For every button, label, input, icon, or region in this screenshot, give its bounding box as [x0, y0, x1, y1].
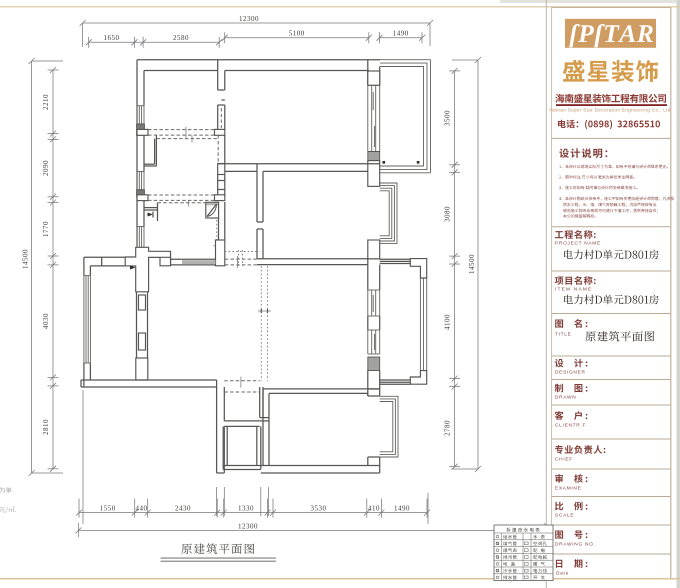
svg-text:1330: 1330 [238, 504, 254, 512]
svg-text:12300: 12300 [238, 523, 258, 531]
svg-text:2810: 2810 [42, 419, 50, 435]
svg-text:14500: 14500 [22, 249, 30, 269]
svg-text:410: 410 [368, 504, 380, 512]
svg-text:DRAWN: DRAWN [555, 395, 576, 401]
svg-text:ITEM NAME: ITEM NAME [555, 287, 592, 293]
svg-text:CLIENTR F: CLIENTR F [555, 423, 586, 429]
svg-text:TITLE: TITLE [555, 332, 572, 338]
svg-text:2090: 2090 [42, 160, 50, 176]
svg-text:DESIGNER: DESIGNER [555, 370, 586, 376]
svg-text:440: 440 [136, 504, 148, 512]
svg-text:1550: 1550 [100, 504, 116, 512]
svg-text:PROJECT NAME: PROJECT NAME [555, 241, 601, 247]
svg-text:4100: 4100 [444, 314, 452, 330]
svg-text:DRAWING NO.: DRAWING NO. [555, 542, 596, 548]
svg-text:1650: 1650 [104, 34, 120, 42]
svg-text:1490: 1490 [394, 504, 410, 512]
svg-text:CHIEF: CHIEF [555, 457, 573, 463]
svg-text:2210: 2210 [42, 94, 50, 110]
svg-text:1490: 1490 [393, 30, 409, 38]
svg-text:Date: Date [556, 571, 569, 577]
svg-text:3080: 3080 [444, 206, 452, 222]
svg-text:2580: 2580 [173, 34, 189, 42]
svg-text:SCALE: SCALE [555, 513, 574, 519]
svg-text:Hainan Super Star Decoration E: Hainan Super Star Decoration Engineering… [549, 108, 670, 113]
svg-text:EXAMINE: EXAMINE [555, 486, 582, 492]
svg-text:1770: 1770 [42, 221, 50, 237]
svg-text:3500: 3500 [444, 110, 452, 126]
svg-text:5100: 5100 [289, 30, 305, 38]
svg-text:14500: 14500 [468, 254, 476, 274]
svg-text:2780: 2780 [444, 420, 452, 436]
svg-text:3530: 3530 [311, 504, 327, 512]
svg-text:4030: 4030 [42, 313, 50, 329]
svg-text:2430: 2430 [175, 504, 191, 512]
svg-text:12300: 12300 [239, 15, 259, 23]
